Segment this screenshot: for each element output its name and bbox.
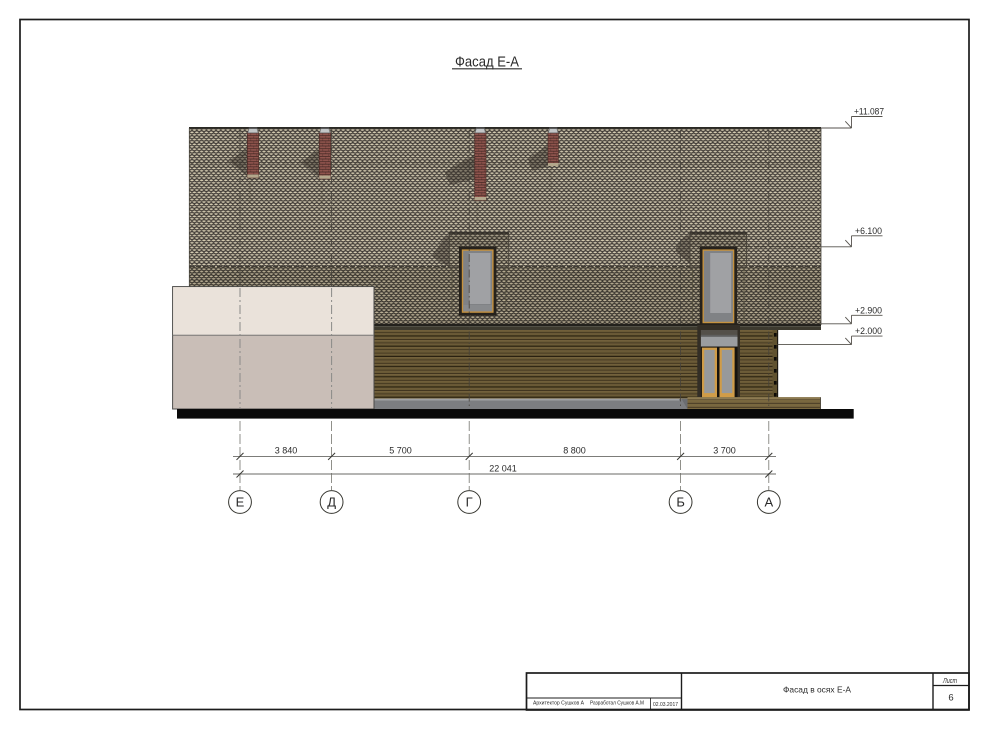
svg-text:Д: Д [327, 495, 336, 510]
svg-text:+11.087: +11.087 [854, 107, 884, 118]
svg-text:Б: Б [676, 495, 685, 510]
svg-text:+2.000: +2.000 [855, 326, 882, 337]
svg-text:+6.100: +6.100 [855, 226, 882, 237]
svg-text:02.03.2017: 02.03.2017 [653, 702, 678, 708]
svg-text:22 041: 22 041 [489, 463, 517, 473]
svg-text:3 700: 3 700 [713, 445, 736, 455]
svg-text:Архитектор Сушков А: Архитектор Сушков А [533, 701, 584, 707]
svg-text:5 700: 5 700 [389, 445, 412, 455]
svg-text:Разработал Сушков А.М: Разработал Сушков А.М [590, 701, 644, 707]
svg-text:Лист: Лист [942, 678, 957, 685]
svg-text:А: А [764, 495, 773, 510]
svg-text:+2.900: +2.900 [855, 305, 882, 316]
svg-text:3 840: 3 840 [275, 445, 298, 455]
svg-text:Е: Е [236, 495, 245, 510]
svg-text:6: 6 [948, 693, 953, 704]
svg-text:Фасад в осях Е-А: Фасад в осях Е-А [783, 685, 851, 695]
svg-text:Фасад Е-А: Фасад Е-А [455, 55, 519, 71]
svg-text:Г: Г [466, 495, 473, 510]
svg-text:8 800: 8 800 [563, 445, 586, 455]
